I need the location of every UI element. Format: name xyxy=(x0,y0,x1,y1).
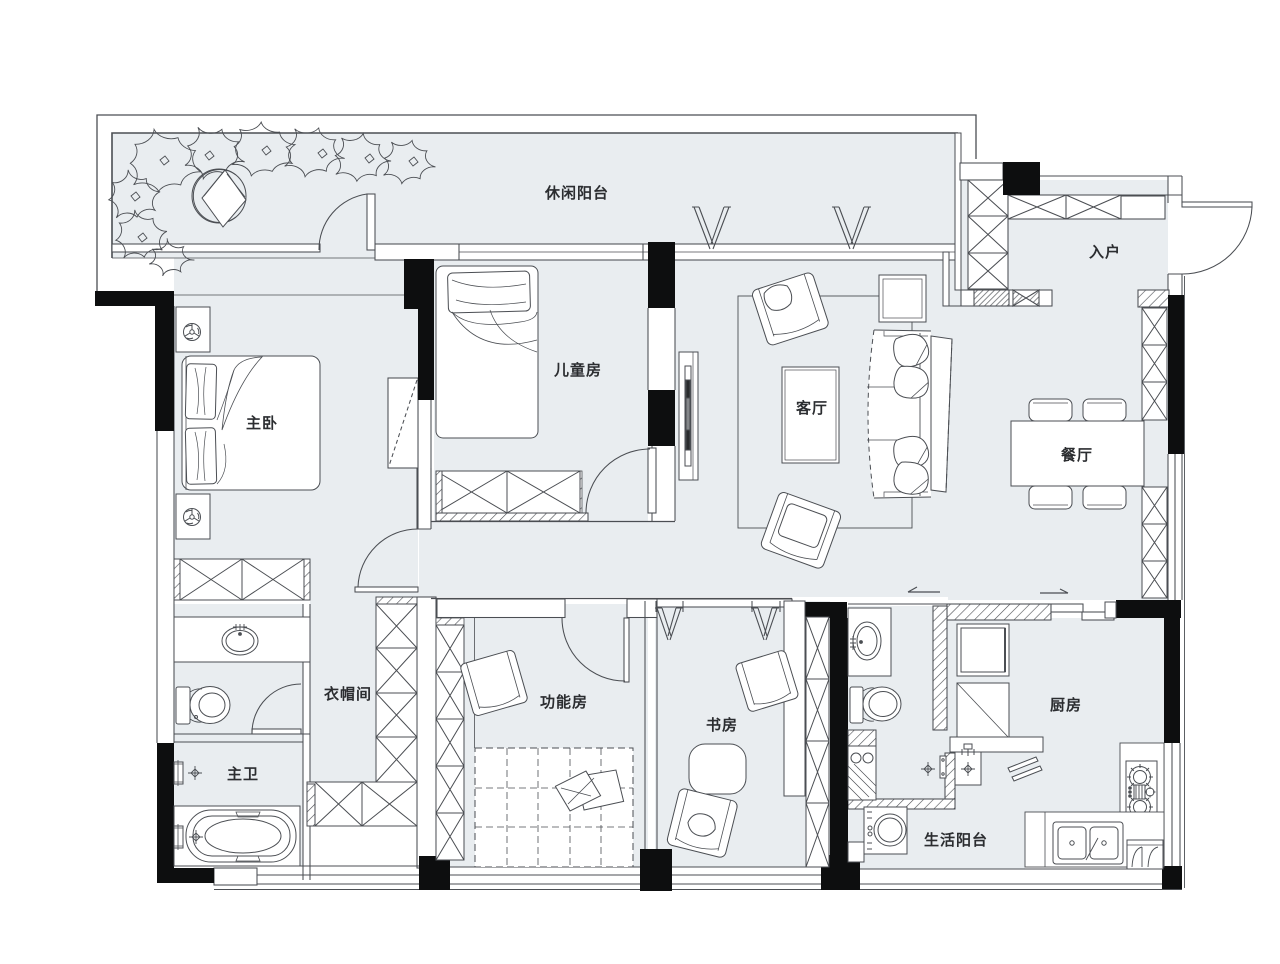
svg-text:功能房: 功能房 xyxy=(540,693,588,711)
svg-text:休闲阳台: 休闲阳台 xyxy=(544,184,609,202)
svg-text:入户: 入户 xyxy=(1089,243,1121,261)
svg-text:衣帽间: 衣帽间 xyxy=(324,685,372,703)
svg-text:餐厅: 餐厅 xyxy=(1061,446,1093,464)
svg-text:厨房: 厨房 xyxy=(1050,696,1082,714)
svg-text:主卫: 主卫 xyxy=(227,765,259,783)
svg-text:书房: 书房 xyxy=(706,716,738,734)
svg-text:儿童房: 儿童房 xyxy=(553,361,602,379)
svg-text:主卧: 主卧 xyxy=(246,414,278,432)
svg-text:客厅: 客厅 xyxy=(795,399,828,417)
svg-text:生活阳台: 生活阳台 xyxy=(924,831,988,849)
